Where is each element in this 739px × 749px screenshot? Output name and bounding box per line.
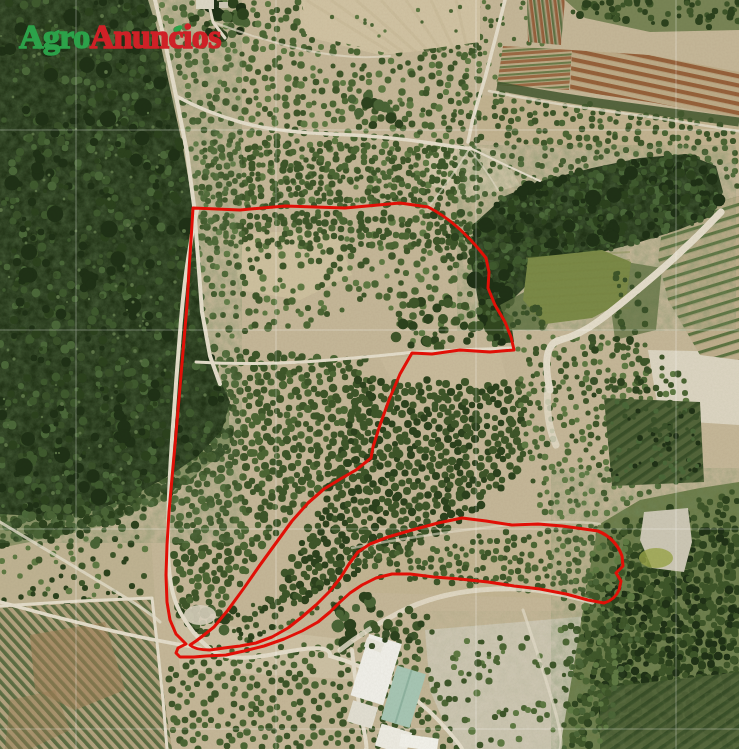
- svg-text:AgroAnuncios: AgroAnuncios: [19, 18, 221, 55]
